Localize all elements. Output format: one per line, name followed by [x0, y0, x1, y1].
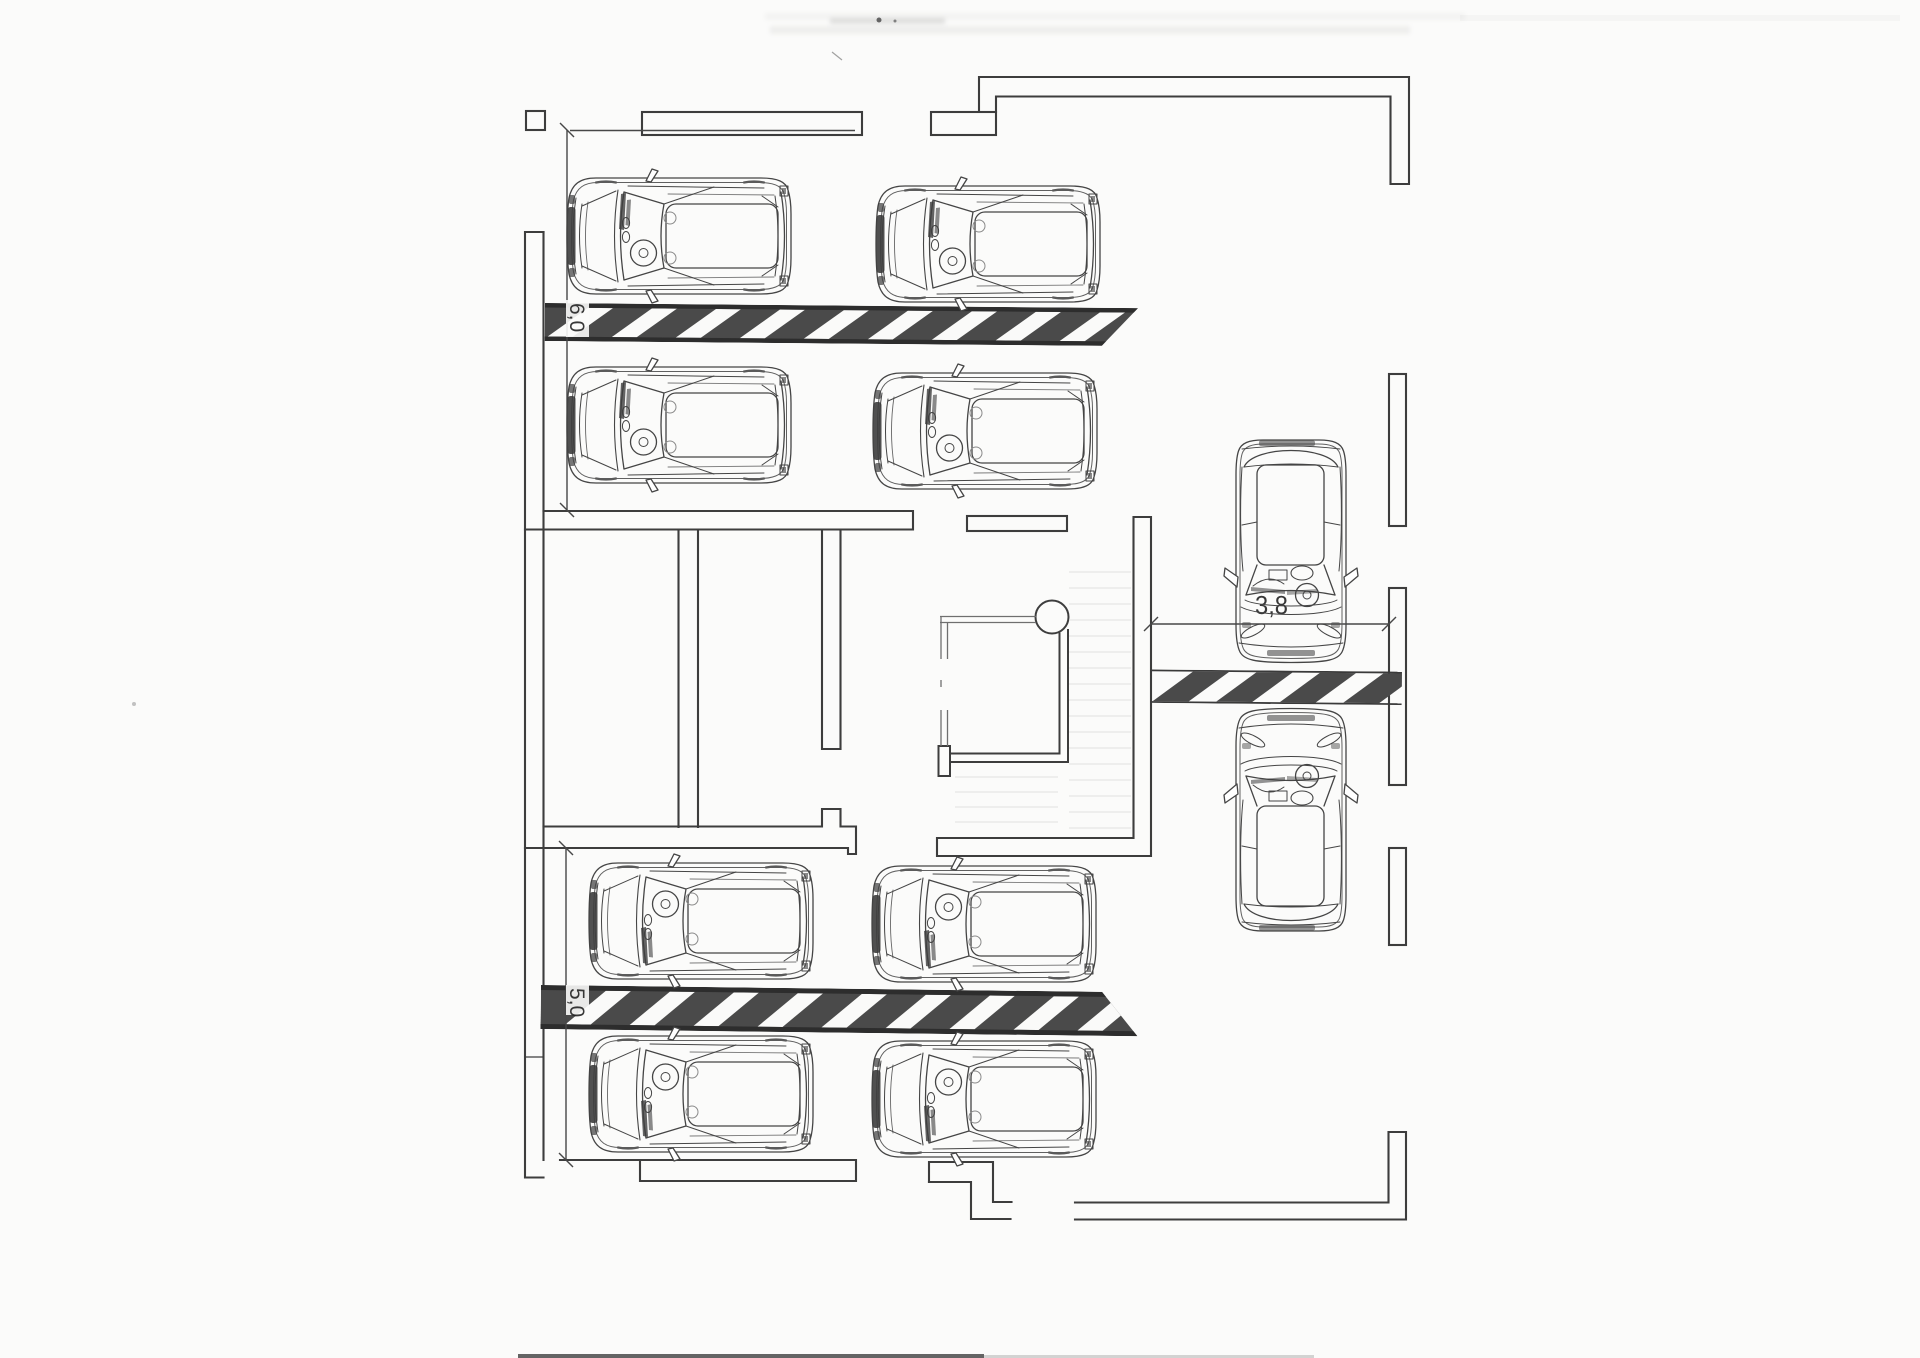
svg-text:6,0: 6,0 — [565, 303, 588, 332]
svg-text:5,0: 5,0 — [565, 988, 588, 1017]
